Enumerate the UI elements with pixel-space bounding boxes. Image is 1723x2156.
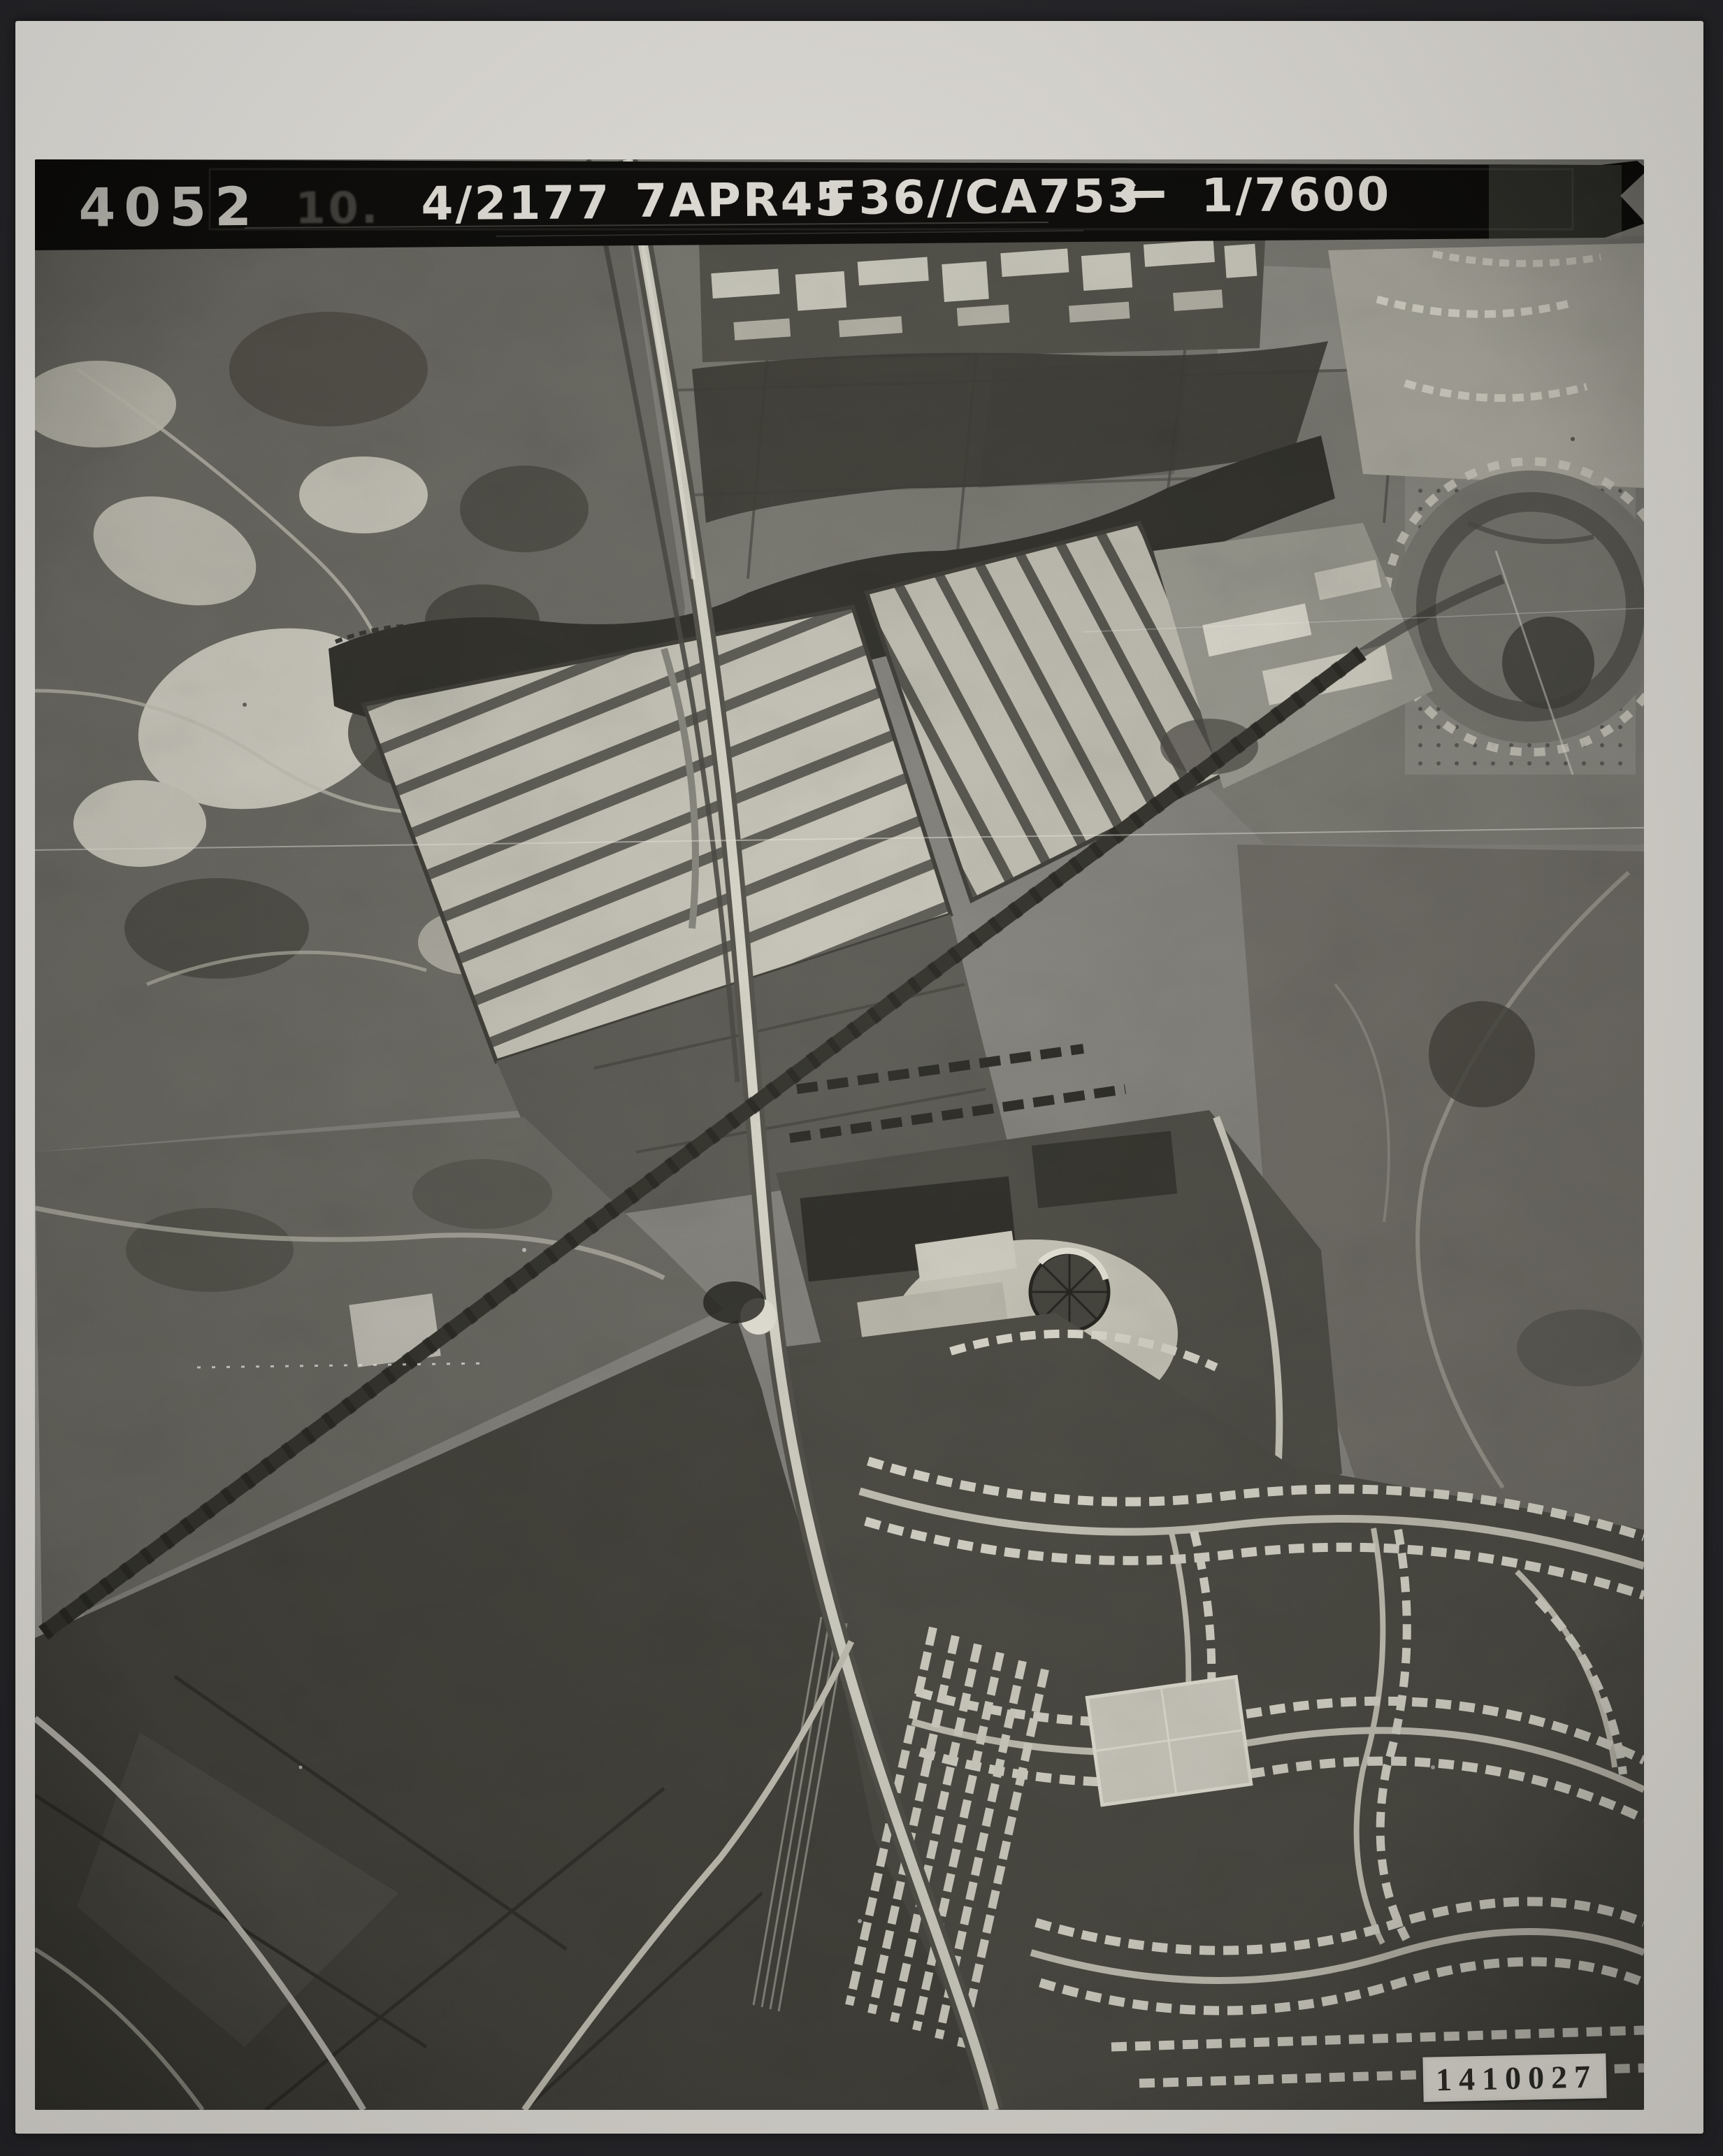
archive-label-left-number: 141 <box>1435 2060 1505 2098</box>
aerial-photo-art: 4052 10. 4/2177 7APR45 F36//CA753 ← 1/76… <box>35 159 1644 2110</box>
vignette-overlay <box>35 159 1644 2110</box>
aerial-photograph: 4052 10. 4/2177 7APR45 F36//CA753 ← 1/76… <box>35 159 1644 2110</box>
archive-label-right-number: 0027 <box>1504 2057 1597 2097</box>
scanner-background: 4052 10. 4/2177 7APR45 F36//CA753 ← 1/76… <box>0 0 1723 2156</box>
photo-paper: 4052 10. 4/2177 7APR45 F36//CA753 ← 1/76… <box>15 21 1703 2134</box>
archive-label: 141 0027 <box>1422 2053 1606 2101</box>
